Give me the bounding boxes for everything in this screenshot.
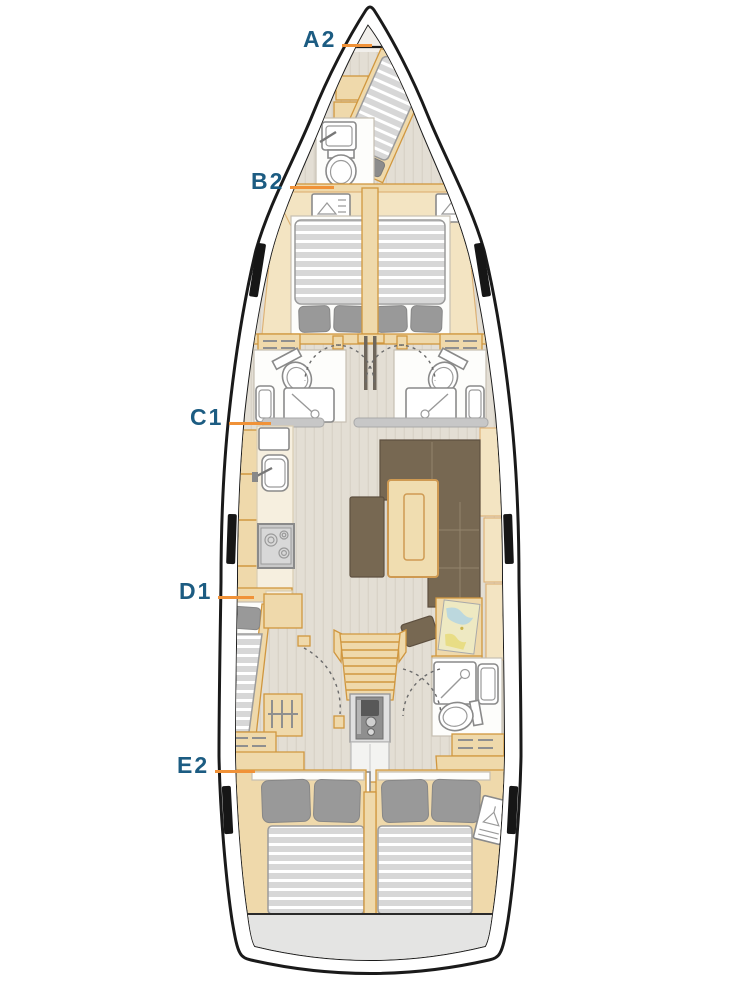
cabin-label-d1: D1 — [179, 578, 254, 605]
cabin-label-e2-text: E2 — [177, 752, 209, 779]
cabin-label-d1-leader-line — [218, 596, 254, 599]
chart-table — [436, 598, 482, 658]
cabin-label-e2-leader-line — [215, 770, 255, 773]
stbd-sideboard-counter — [354, 418, 488, 427]
shower-icon — [284, 388, 334, 422]
shower-icon — [406, 388, 456, 422]
cabin-label-a2-text: A2 — [303, 26, 336, 53]
drawer-unit — [452, 734, 504, 756]
cabin-label-e2: E2 — [177, 752, 255, 779]
aft-port-berth — [226, 770, 366, 920]
cabin-label-b2-leader-line — [290, 186, 334, 189]
cabin-label-b2-text: B2 — [251, 168, 284, 195]
cabin-label-c1-text: C1 — [190, 404, 223, 431]
cabin-label-b2: B2 — [251, 168, 334, 195]
fwd-port-berth — [291, 216, 372, 336]
shower-icon — [434, 662, 476, 704]
yacht-hull-plan — [0, 0, 750, 1000]
cabin-label-a2: A2 — [303, 26, 372, 53]
yacht-layout-diagram: A2 B2 C1 D1 E2 — [0, 0, 750, 1000]
fwd-stbd-berth — [372, 216, 450, 336]
cabin-label-c1-leader-line — [229, 422, 271, 425]
stbd-head — [394, 348, 486, 422]
galley-stove-icon — [258, 524, 294, 568]
saloon-table — [388, 480, 438, 577]
cabin-label-c1: C1 — [190, 404, 271, 431]
saloon-bench — [350, 497, 384, 577]
cabin-label-d1-text: D1 — [179, 578, 212, 605]
shelf-unit — [264, 694, 302, 736]
cabin-label-a2-leader-line — [342, 44, 372, 47]
